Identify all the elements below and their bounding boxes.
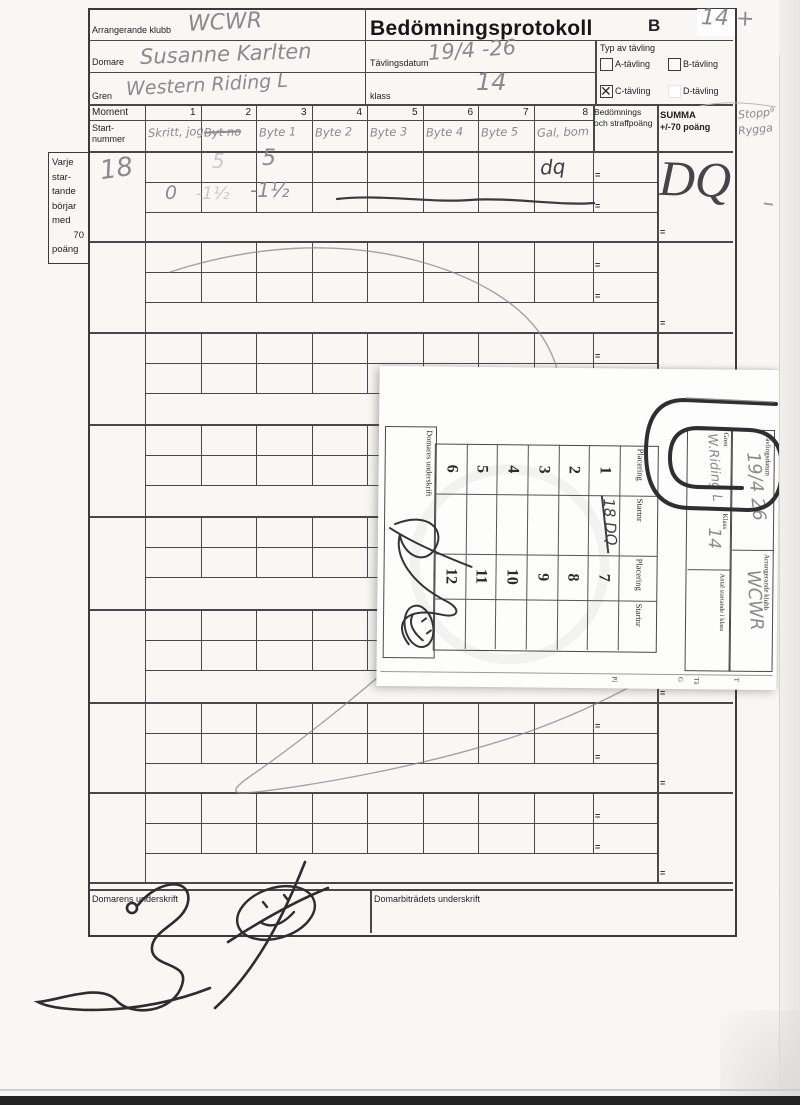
smiley-eyes: [263, 895, 288, 907]
slip-signature-artwork: [378, 506, 490, 687]
signature-s-loops: [38, 884, 210, 1010]
scan-bottom-line: [0, 1089, 800, 1091]
slip-edge-fragment: Pl: [610, 676, 618, 682]
slip-smiley-outline: [400, 603, 437, 650]
slip-club-value: WCWR: [743, 569, 765, 631]
slip-table-header: Placering: [634, 559, 644, 591]
slip-signature-label: Domares underskrift: [424, 430, 434, 496]
slip-smiley-mouth: [411, 614, 423, 640]
slip-table-header: Startnr: [633, 604, 643, 627]
slip-klass-value: 14: [705, 527, 722, 549]
slip-placing-number: 2: [565, 445, 584, 495]
judge-signature-artwork: [20, 850, 380, 1020]
slip-edge-fragment: G: [676, 677, 684, 682]
paper-edge-line: [779, 55, 780, 1090]
row-strikethrough-stroke: [337, 197, 594, 203]
signature-dot: [127, 903, 137, 913]
slip-placing-number: 3: [534, 445, 553, 495]
scanned-protocol-page: 12345678Skritt, jogByt noByte 1Byte 2Byt…: [0, 0, 800, 1105]
paper-right-edge: [779, 0, 800, 1105]
slip-edge-fragment: Tä: [692, 677, 700, 684]
slip-placing-number: 4: [503, 444, 522, 494]
corner-shadow: [720, 1010, 800, 1096]
scanner-dark-strip: [0, 1096, 800, 1105]
stray-mark: [764, 202, 773, 205]
slip-placing-number: 9: [533, 555, 551, 600]
assistant-signature-label: Domarbiträdets underskrift: [374, 894, 480, 905]
paperclip-wire: [646, 400, 782, 510]
slip-placing-number: 10: [502, 554, 520, 599]
paperclip: [598, 370, 798, 530]
pencil-wave-stroke: [700, 103, 776, 107]
slip-starters-label: Antal startande i klass: [717, 573, 725, 668]
slip-placing-number: 8: [564, 555, 582, 600]
slip-edge-fragment: T: [732, 678, 740, 682]
slip-placing-number: 7: [594, 555, 612, 600]
slip-placing-number: 5: [473, 444, 492, 494]
slip-smiley-eyes: [422, 618, 431, 633]
slip-placing-number: 6: [442, 444, 461, 494]
